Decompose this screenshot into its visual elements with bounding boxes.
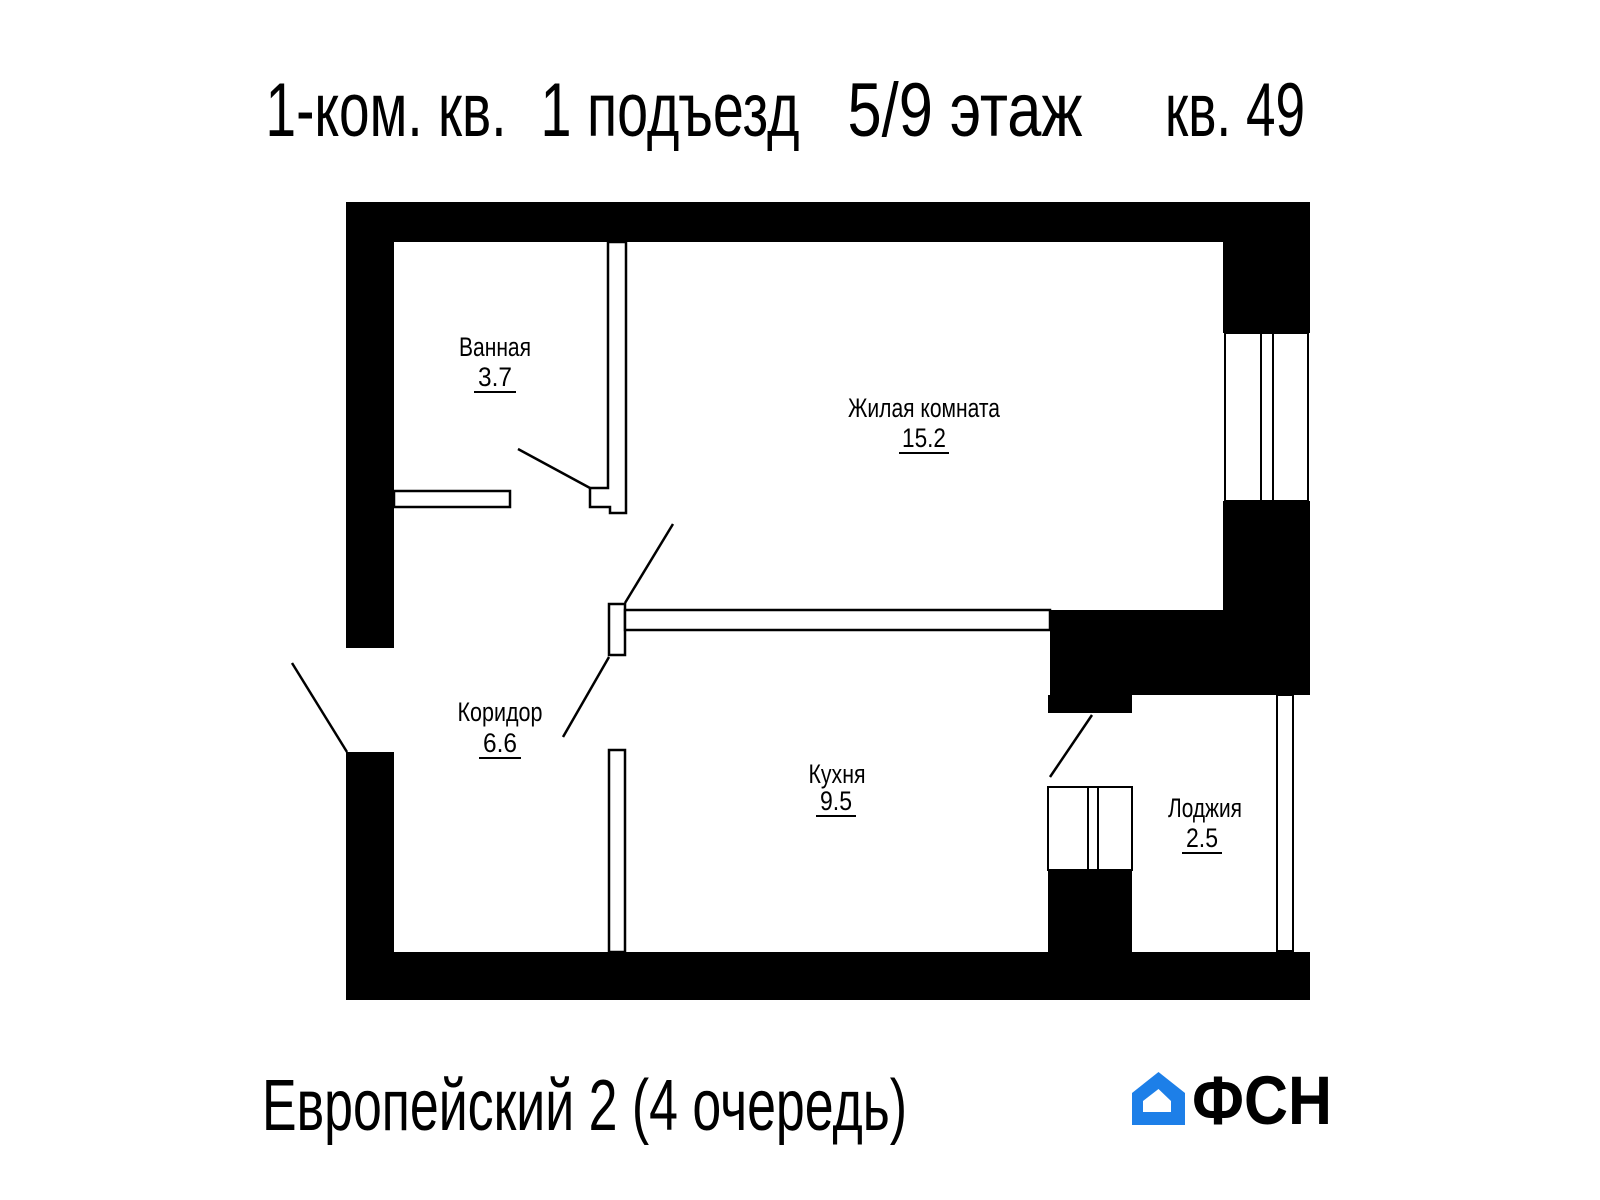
door-bathroom [518,449,590,488]
wall-balcony-sill-lower [1048,870,1132,952]
wall-right-mid [1223,501,1310,610]
window-living-room [1225,333,1308,501]
room-name-bathroom: Ванная [459,332,531,362]
wall-kitchen-jamb [609,604,625,655]
title-apartment-number: кв. 49 [1165,68,1305,153]
project-name: Европейский 2 (4 очередь) [262,1066,907,1146]
footer: Европейский 2 (4 очередь) ФСН [262,1062,1332,1146]
room-labels: Ванная 3.7 Жилая комната 15.2 Коридор 6.… [458,332,1243,853]
floor-plan-page: Ванная 3.7 Жилая комната 15.2 Коридор 6.… [0,0,1600,1200]
label-bathroom: Ванная 3.7 [459,332,531,392]
wall-bottom [346,952,1310,1000]
floor-plan-drawing: Ванная 3.7 Жилая комната 15.2 Коридор 6.… [0,0,1600,1200]
loggia-glazing [1277,695,1293,951]
room-area-loggia: 2.5 [1186,823,1218,853]
wall-corridor-kitchen [609,750,625,952]
logo-text: ФСН [1192,1062,1332,1139]
window-kitchen-loggia [1048,787,1132,870]
label-living-room: Жилая комната 15.2 [848,393,1001,453]
wall-top [346,202,1310,242]
wall-balcony-door-head [1048,695,1132,713]
door-balcony [1050,715,1092,777]
title-floor: 5/9 этаж [848,68,1083,153]
wall-slab-above-loggia [1050,610,1310,695]
room-area-kitchen: 9.5 [820,786,852,816]
room-name-living: Жилая комната [848,393,1001,423]
title-apartment-type: 1-ком. кв. [266,68,507,153]
room-area-bathroom: 3.7 [478,362,512,392]
wall-right-upper [1223,202,1310,333]
label-corridor: Коридор 6.6 [458,697,543,758]
wall-bathroom-stub [394,491,510,507]
wall-living-kitchen [625,610,1050,630]
room-area-living: 15.2 [902,423,946,453]
company-logo: ФСН [1132,1062,1332,1139]
door-entrance [292,663,347,752]
door-kitchen [563,657,609,737]
wall-left-upper [346,202,394,648]
wall-bathroom-living-partition [590,242,626,513]
title-entrance: 1 подъезд [541,68,800,153]
room-name-kitchen: Кухня [809,759,866,789]
label-kitchen: Кухня 9.5 [809,759,866,816]
page-title: 1-ком. кв. 1 подъезд 5/9 этаж кв. 49 [266,68,1306,153]
outer-walls [346,202,1310,1000]
door-living-room [625,524,673,603]
label-loggia: Лоджия 2.5 [1168,793,1242,853]
room-area-corridor: 6.6 [483,728,517,758]
room-name-corridor: Коридор [458,697,543,727]
room-name-loggia: Лоджия [1168,793,1242,823]
